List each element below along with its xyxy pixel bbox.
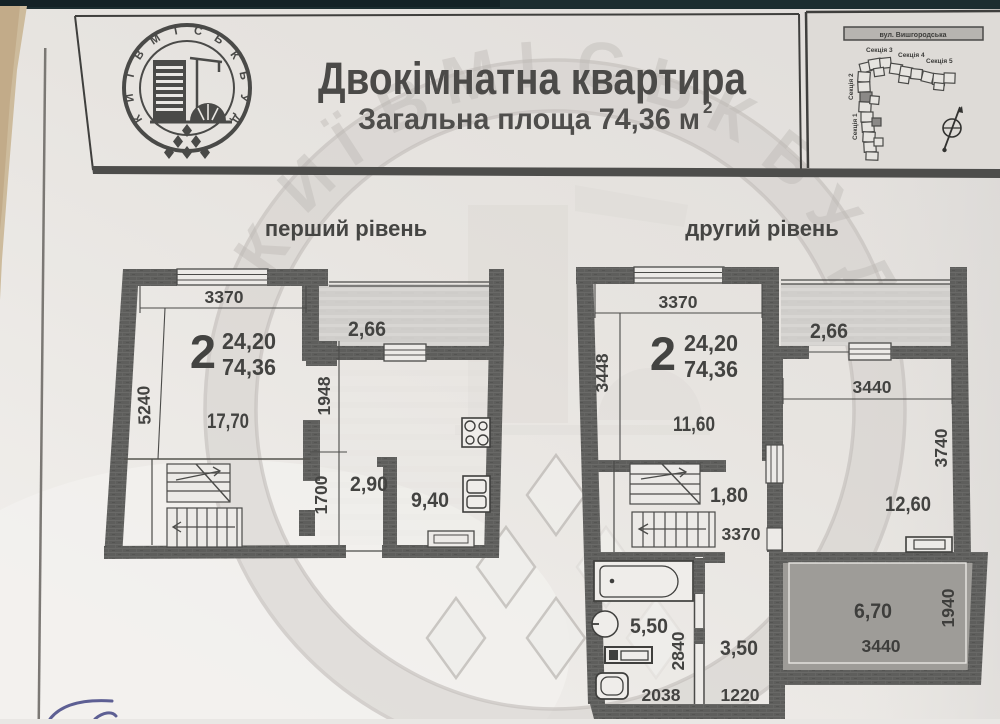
svg-text:17,70: 17,70 (207, 409, 249, 433)
svg-text:11,60: 11,60 (673, 412, 715, 436)
svg-text:3370: 3370 (659, 292, 698, 312)
svg-text:другий рівень: другий рівень (685, 216, 839, 241)
svg-text:74,36: 74,36 (684, 356, 738, 382)
svg-text:9,40: 9,40 (411, 488, 449, 512)
svg-text:вул. Вишгородська: вул. Вишгородська (880, 32, 947, 39)
svg-text:2,66: 2,66 (810, 319, 848, 343)
svg-text:Двокімнатна квартира: Двокімнатна квартира (318, 53, 747, 104)
svg-text:2038: 2038 (642, 685, 681, 705)
svg-text:3440: 3440 (853, 377, 892, 397)
svg-text:Секція 2: Секція 2 (847, 73, 855, 100)
svg-text:2,66: 2,66 (348, 317, 386, 341)
svg-text:Секція 4: Секція 4 (898, 51, 925, 59)
svg-text:6,70: 6,70 (854, 599, 892, 623)
svg-text:5,50: 5,50 (630, 614, 668, 638)
svg-text:2,90: 2,90 (350, 472, 388, 496)
svg-text:1220: 1220 (721, 685, 760, 705)
svg-text:3,50: 3,50 (720, 636, 758, 660)
svg-text:Секція 3: Секція 3 (866, 46, 893, 54)
svg-text:5240: 5240 (133, 385, 154, 425)
svg-text:12,60: 12,60 (885, 492, 931, 516)
svg-text:24,20: 24,20 (684, 330, 738, 356)
svg-text:Секція 5: Секція 5 (926, 57, 953, 65)
svg-text:3370: 3370 (205, 287, 244, 307)
svg-text:1948: 1948 (314, 376, 334, 415)
svg-text:1,80: 1,80 (710, 483, 748, 507)
svg-text:перший рівень: перший рівень (265, 216, 427, 241)
svg-text:Секція 1: Секція 1 (851, 113, 859, 140)
svg-text:2840: 2840 (668, 631, 688, 670)
svg-text:2: 2 (703, 98, 712, 117)
svg-text:1700: 1700 (311, 475, 331, 514)
svg-text:3740: 3740 (931, 428, 951, 467)
svg-text:2: 2 (190, 325, 216, 378)
svg-text:Загальна площа 74,36 м: Загальна площа 74,36 м (358, 103, 700, 136)
svg-text:3440: 3440 (862, 636, 901, 656)
svg-text:3448: 3448 (592, 353, 612, 392)
svg-text:1940: 1940 (938, 588, 958, 627)
svg-text:24,20: 24,20 (222, 328, 276, 354)
svg-text:3370: 3370 (722, 524, 761, 544)
svg-text:2: 2 (650, 327, 676, 380)
svg-text:74,36: 74,36 (222, 354, 276, 380)
